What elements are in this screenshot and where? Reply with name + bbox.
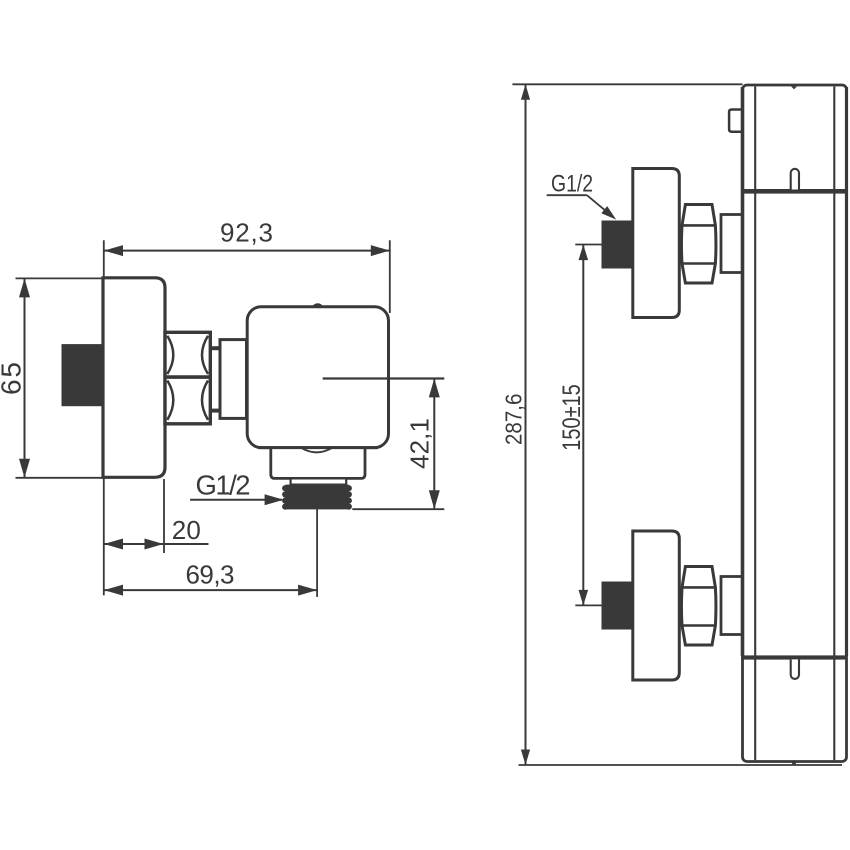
svg-text:65: 65 <box>0 362 27 395</box>
svg-text:G1/2: G1/2 <box>196 469 251 500</box>
svg-text:G1/2: G1/2 <box>551 171 593 198</box>
svg-text:92,3: 92,3 <box>220 217 273 247</box>
svg-text:287,6: 287,6 <box>500 394 526 446</box>
svg-text:20: 20 <box>172 515 201 545</box>
svg-text:42,1: 42,1 <box>405 418 435 469</box>
svg-text:69,3: 69,3 <box>186 559 235 589</box>
svg-text:150±15: 150±15 <box>558 384 586 451</box>
